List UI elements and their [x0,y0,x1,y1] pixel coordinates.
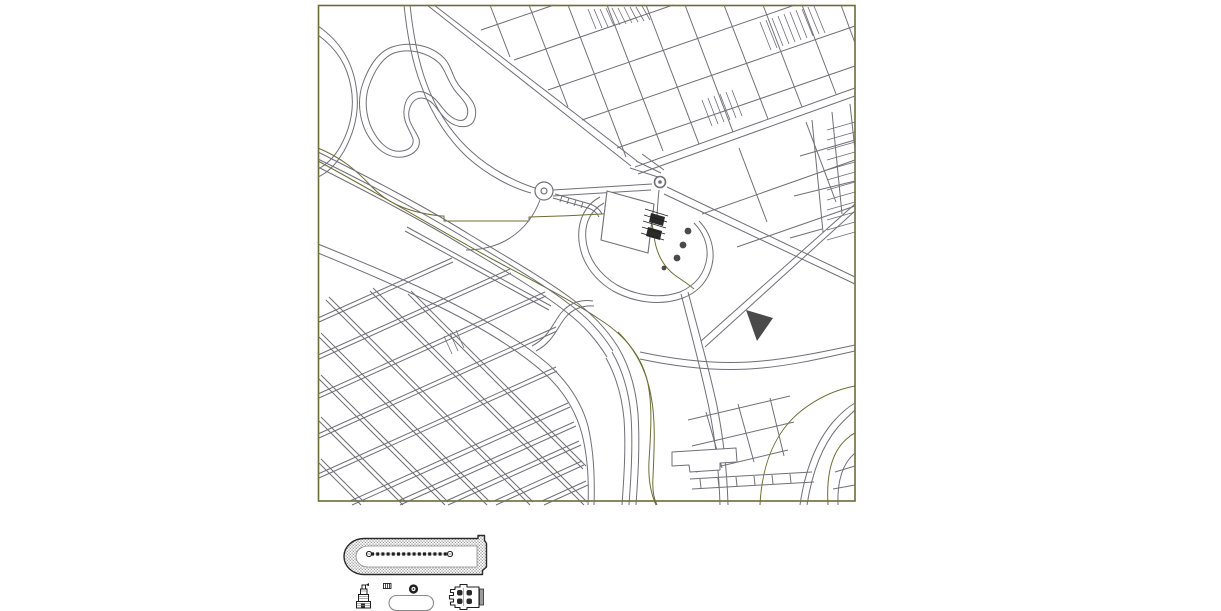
site-trees [674,255,681,262]
pool-detail [389,596,434,611]
statue-detail [361,589,368,595]
castle-wing [480,589,484,605]
castle-detail [450,585,480,610]
city-map [318,5,855,611]
castle-piers [467,599,473,605]
drawing-area [0,0,1221,611]
site-trees [685,228,692,235]
cad-drawing [0,0,1221,611]
roundabouts [658,180,662,184]
grandstand-infield [356,546,477,567]
castle-piers [457,599,463,605]
castle-piers [457,590,463,596]
castle-piers [467,590,473,596]
grandstand-infield [356,546,477,567]
site-trees [680,242,687,249]
fountain-detail [409,584,418,593]
statue-flag [366,583,370,586]
pool-detail [389,596,434,611]
fountain-detail [413,588,415,590]
statue-detail [359,595,369,602]
castle-detail [450,585,480,610]
site-trees [662,266,667,271]
castle-wing [480,589,484,605]
statue-flag [366,583,370,586]
statue-detail [362,585,366,589]
